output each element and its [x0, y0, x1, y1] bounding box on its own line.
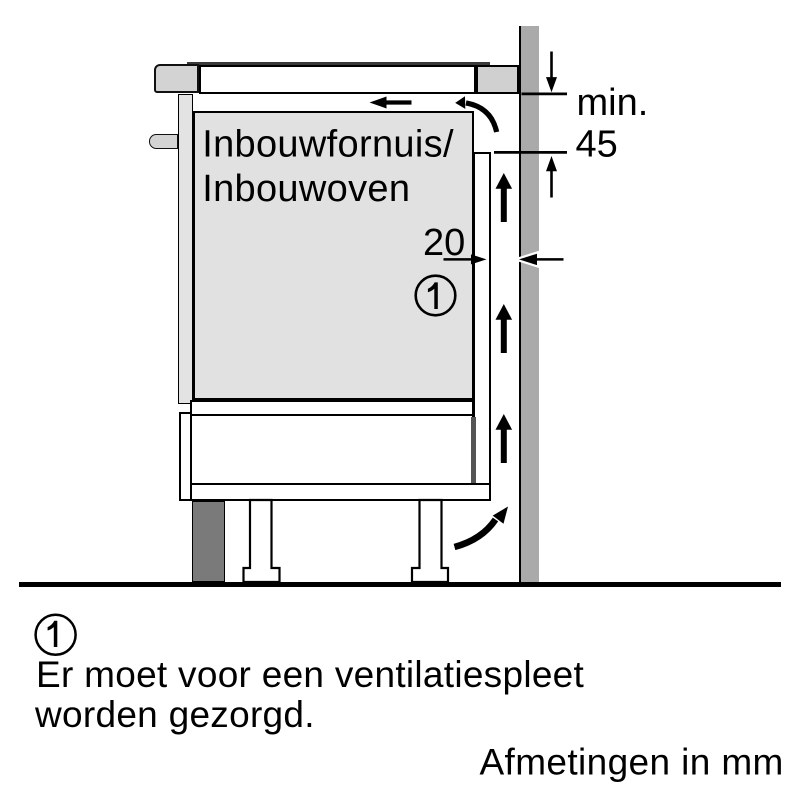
svg-text:Afmetingen in mm: Afmetingen in mm	[480, 741, 784, 782]
svg-text:Er moet voor een ventilatiespl: Er moet voor een ventilatiespleet	[36, 654, 585, 695]
svg-text:45: 45	[576, 124, 618, 166]
svg-text:Inbouwfornuis/: Inbouwfornuis/	[202, 123, 454, 165]
svg-text:Inbouwoven: Inbouwoven	[202, 168, 410, 210]
svg-text:min.: min.	[577, 82, 649, 124]
svg-text:20: 20	[423, 222, 465, 264]
svg-text:worden gezorgd.: worden gezorgd.	[34, 694, 315, 735]
